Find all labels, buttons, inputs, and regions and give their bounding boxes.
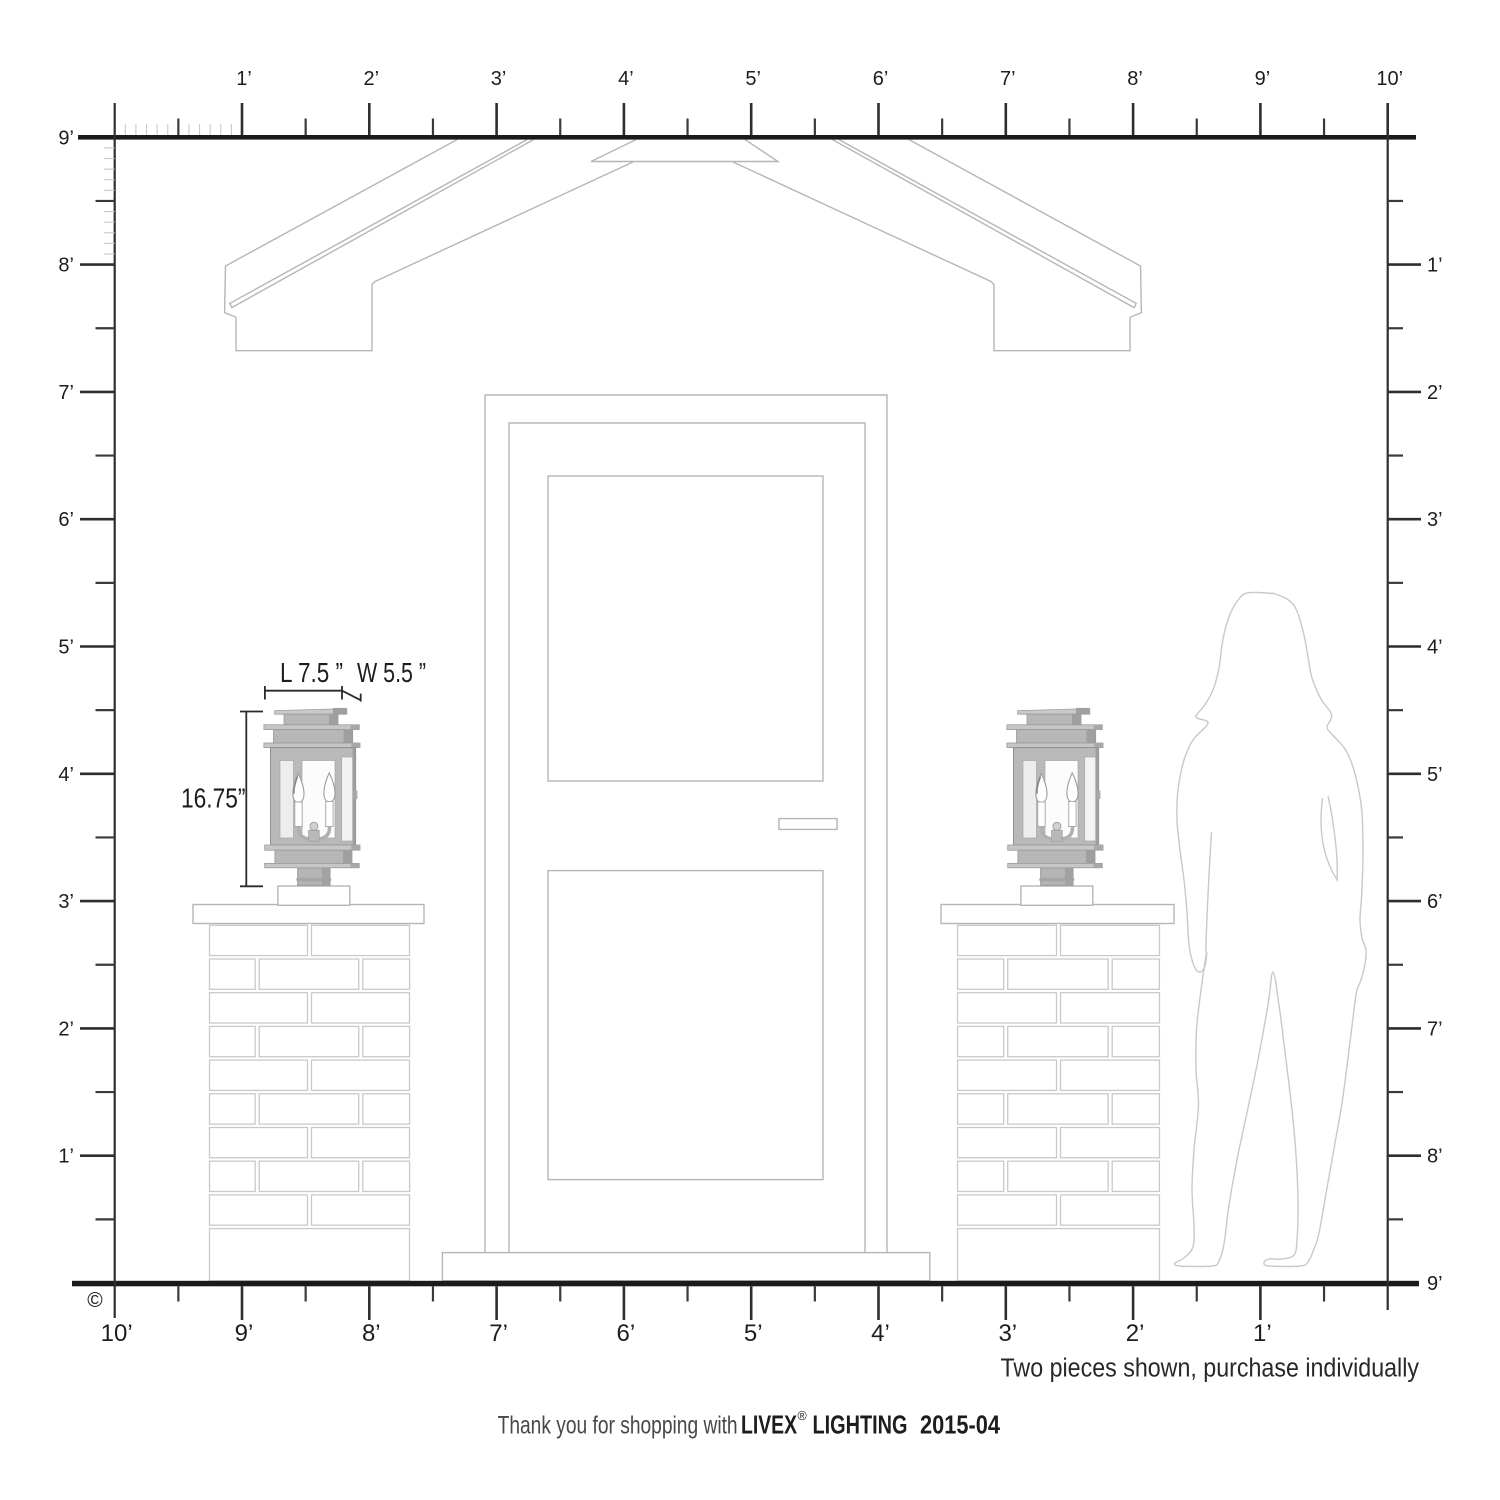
svg-text:2’: 2’ [364,68,380,90]
svg-text:3’: 3’ [1427,509,1443,531]
svg-text:9’: 9’ [235,1320,254,1347]
svg-text:5’: 5’ [58,637,74,659]
svg-text:2’: 2’ [1126,1320,1145,1347]
svg-text:9’: 9’ [58,127,74,149]
svg-text:7’: 7’ [489,1320,508,1347]
svg-text:5’: 5’ [745,68,761,90]
svg-text:8’: 8’ [58,255,74,277]
svg-text:9’: 9’ [1427,1273,1443,1295]
svg-text:8’: 8’ [1127,68,1143,90]
svg-text:3’: 3’ [998,1320,1017,1347]
svg-text:8’: 8’ [1427,1146,1443,1168]
svg-text:6’: 6’ [873,68,889,90]
svg-text:5’: 5’ [744,1320,763,1347]
svg-text:3’: 3’ [491,68,507,90]
svg-text:®: ® [798,1409,808,1423]
svg-text:2’: 2’ [1427,382,1443,404]
svg-text:LIGHTING: LIGHTING [813,1410,908,1440]
svg-text:7’: 7’ [1427,1018,1443,1040]
svg-text:4’: 4’ [871,1320,890,1347]
svg-text:©: © [87,1289,103,1312]
svg-text:7’: 7’ [58,382,74,404]
svg-text:2’: 2’ [58,1018,74,1040]
svg-text:1’: 1’ [58,1146,74,1168]
svg-text:3’: 3’ [58,891,74,913]
svg-text:10’: 10’ [101,1320,133,1347]
svg-text:4’: 4’ [58,764,74,786]
svg-text:16.75”: 16.75” [181,783,246,814]
svg-text:6’: 6’ [58,509,74,531]
svg-text:4’: 4’ [1427,637,1443,659]
svg-text:6’: 6’ [1427,891,1443,913]
svg-text:1’: 1’ [236,68,252,90]
svg-text:LIVEX: LIVEX [741,1410,797,1440]
svg-text:4’: 4’ [618,68,634,90]
svg-text:9’: 9’ [1255,68,1271,90]
svg-text:8’: 8’ [362,1320,381,1347]
svg-text:5’: 5’ [1427,764,1443,786]
svg-text:6’: 6’ [617,1320,636,1347]
svg-text:1’: 1’ [1253,1320,1272,1347]
svg-text:2015-04: 2015-04 [920,1410,1000,1440]
svg-text:1’: 1’ [1427,255,1443,277]
svg-text:L 7.5 ”: L 7.5 ” [280,657,343,688]
svg-text:7’: 7’ [1000,68,1016,90]
svg-text:W 5.5 ”: W 5.5 ” [357,657,426,688]
svg-text:10’: 10’ [1376,68,1403,90]
svg-text:Thank you for shopping with: Thank you for shopping with [498,1412,738,1440]
svg-text:Two pieces shown, purchase ind: Two pieces shown, purchase individually [1001,1355,1420,1383]
